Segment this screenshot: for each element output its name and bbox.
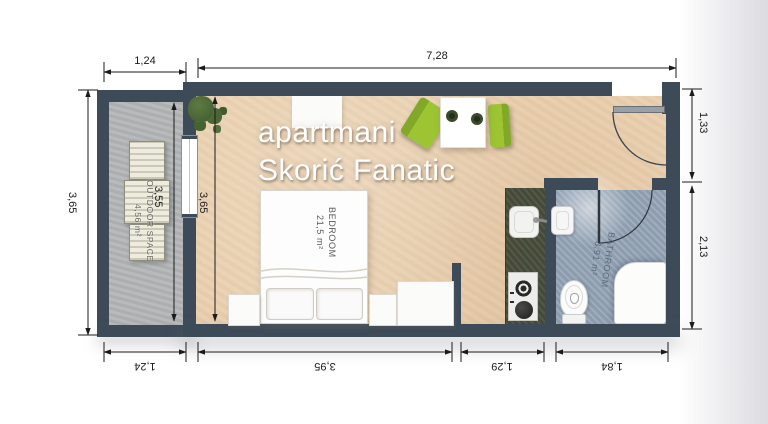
title-line-1: apartmani xyxy=(258,114,455,152)
bedroom-label: BEDROOM 21,5 m² xyxy=(314,192,338,272)
dimension-bottom-bedroom: 3,95 xyxy=(305,360,345,372)
dimension-top-balcony: 1,24 xyxy=(125,55,165,67)
dimension-bottom-kitchen: 1,29 xyxy=(482,360,522,372)
outdoor-space-label: OUTDOOR SPACE 4,56 m² xyxy=(132,148,156,293)
dimension-lines-layer xyxy=(0,0,768,424)
outdoor-space-area: 4,56 m² xyxy=(132,148,144,293)
page-title: apartmani Skorić Fanatic xyxy=(258,114,455,190)
dimension-left-outer: 3,65 xyxy=(66,192,78,213)
floor-plan: apartmani Skorić Fanatic 1,24 7,28 3,65 … xyxy=(0,0,768,424)
outdoor-space-name: OUTDOOR SPACE xyxy=(144,148,156,293)
entrance-door-swing xyxy=(613,112,666,165)
dimension-bedroom-inner: 3,65 xyxy=(197,192,209,213)
dimension-top-main: 7,28 xyxy=(407,50,467,62)
bedroom-name: BEDROOM xyxy=(326,192,338,272)
dimension-right-bathroom: 2,13 xyxy=(697,236,709,257)
dimension-bottom-bathroom: 1,84 xyxy=(592,360,632,372)
bedroom-area: 21,5 m² xyxy=(314,192,326,272)
dimension-right-entry: 1,33 xyxy=(697,112,709,133)
dimension-bottom-balcony: 1,24 xyxy=(125,360,165,372)
title-line-2: Skorić Fanatic xyxy=(258,152,455,190)
